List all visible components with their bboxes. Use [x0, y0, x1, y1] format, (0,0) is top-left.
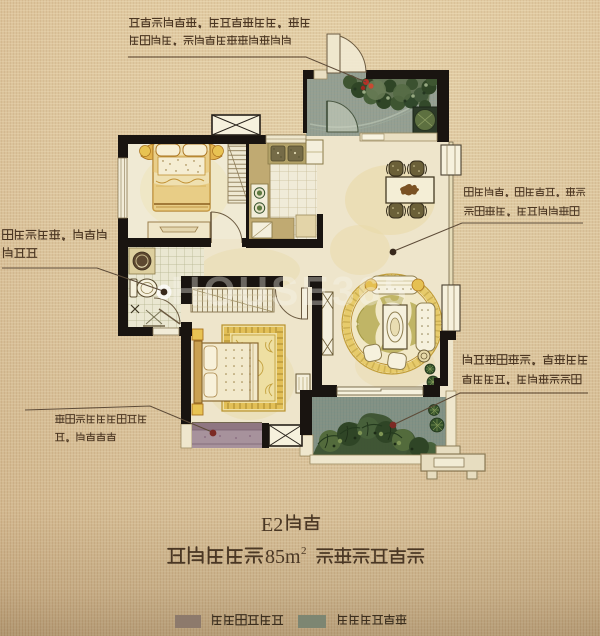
svg-text:2: 2 — [301, 545, 307, 557]
svg-text:E2: E2 — [261, 514, 283, 536]
svg-text:HOUSE365: HOUSE365 — [171, 268, 409, 314]
svg-text:85m: 85m — [265, 546, 301, 568]
